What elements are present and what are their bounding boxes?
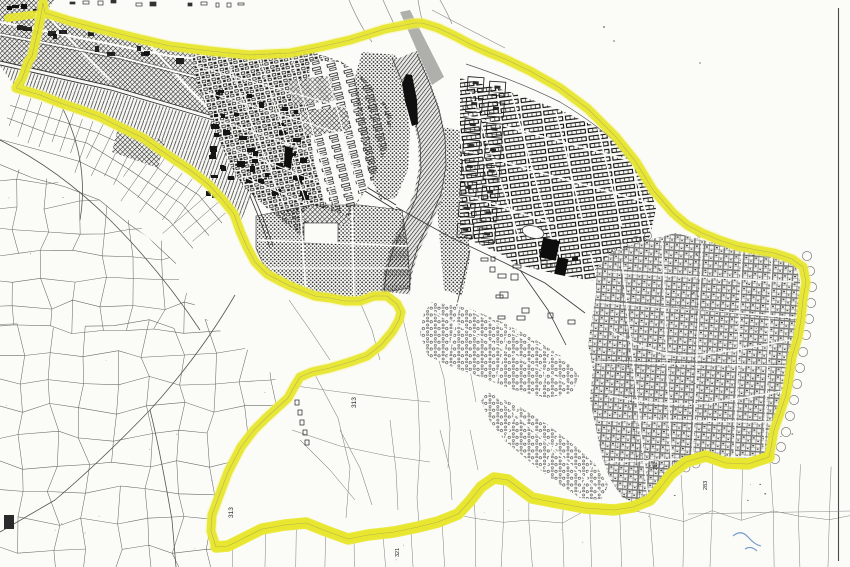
svg-text:313: 313 [351, 397, 358, 408]
svg-text:321: 321 [395, 548, 401, 557]
svg-text:283: 283 [703, 481, 709, 490]
svg-text:282: 282 [653, 461, 659, 470]
svg-text:313: 313 [228, 507, 235, 518]
